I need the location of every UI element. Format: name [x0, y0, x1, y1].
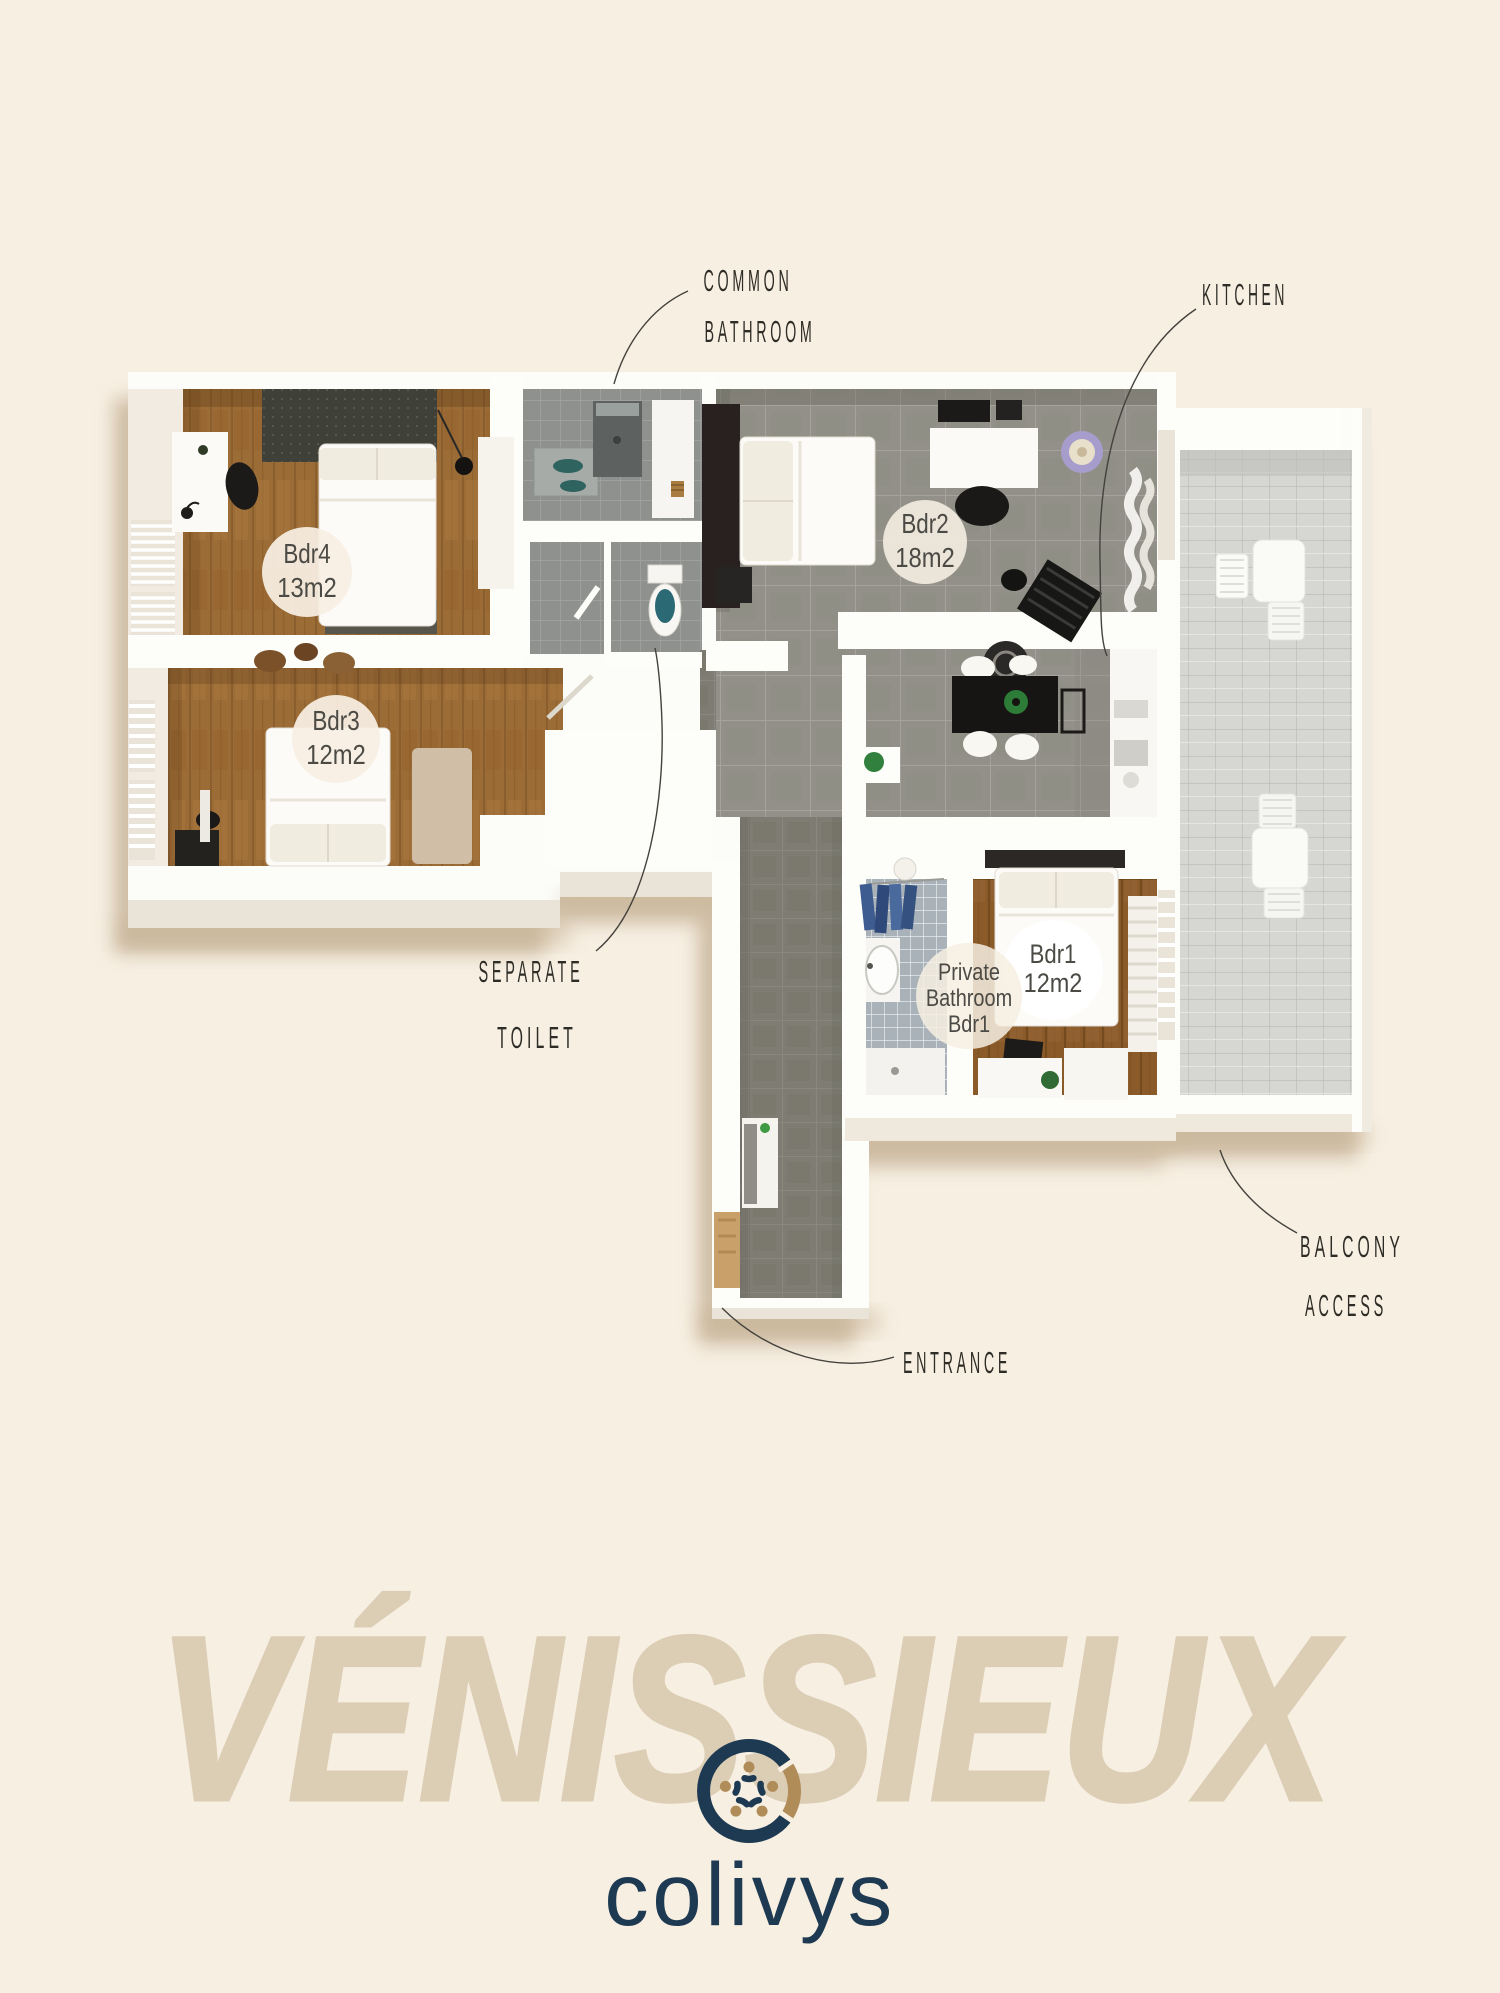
svg-text:Private: Private: [938, 958, 1000, 985]
svg-text:Bdr2: Bdr2: [901, 509, 948, 540]
svg-text:BALCONY: BALCONY: [1300, 1231, 1404, 1265]
svg-text:Bdr1: Bdr1: [948, 1010, 990, 1037]
svg-text:Bdr1: Bdr1: [1030, 940, 1077, 970]
svg-text:COMMON: COMMON: [704, 264, 793, 299]
svg-text:18m2: 18m2: [895, 541, 955, 573]
svg-text:Bathroom: Bathroom: [926, 984, 1012, 1011]
svg-text:Bdr3: Bdr3: [312, 706, 359, 737]
svg-text:12m2: 12m2: [306, 738, 366, 770]
svg-text:KITCHEN: KITCHEN: [1202, 278, 1288, 313]
svg-text:VÉNISSIEUX: VÉNISSIEUX: [158, 1588, 1343, 1849]
svg-text:colivys: colivys: [604, 1844, 896, 1944]
svg-text:BATHROOM: BATHROOM: [705, 315, 816, 350]
svg-text:ENTRANCE: ENTRANCE: [903, 1346, 1011, 1381]
svg-text:12m2: 12m2: [1024, 969, 1083, 999]
svg-text:SEPARATE: SEPARATE: [479, 955, 584, 990]
svg-text:Bdr4: Bdr4: [283, 539, 330, 570]
svg-text:TOILET: TOILET: [497, 1022, 577, 1056]
svg-text:ACCESS: ACCESS: [1305, 1289, 1387, 1324]
svg-text:13m2: 13m2: [277, 571, 337, 603]
